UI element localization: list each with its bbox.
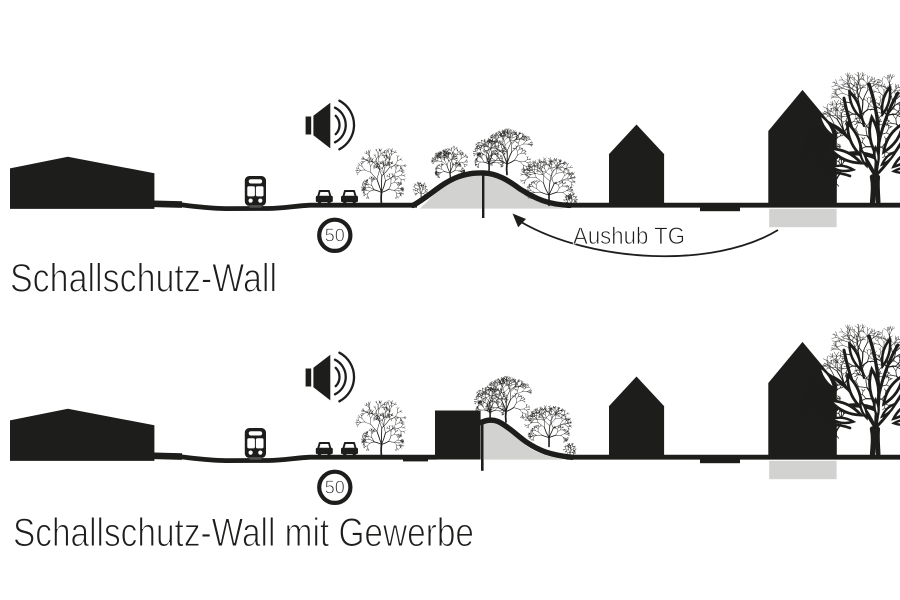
svg-text:Schallschutz-Wall: Schallschutz-Wall (10, 257, 277, 301)
svg-text:Schallschutz-Wall mit Gewerbe: Schallschutz-Wall mit Gewerbe (13, 511, 474, 555)
svg-text:50: 50 (325, 226, 345, 246)
svg-text:Aushub TG: Aushub TG (573, 223, 685, 250)
svg-text:50: 50 (325, 478, 345, 498)
